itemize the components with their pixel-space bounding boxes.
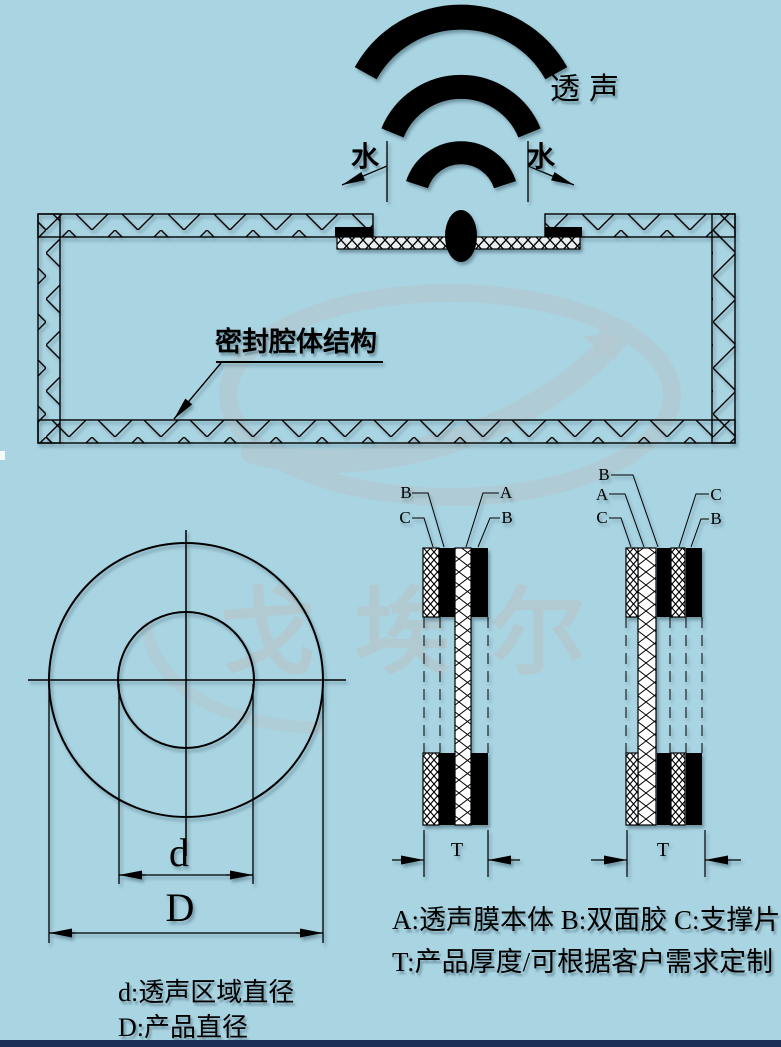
technical-drawing: d D [0, 0, 781, 1047]
stack-view-2: B A C C B T [591, 465, 741, 877]
legend-product-diameter: D:产品直径 [118, 1014, 248, 1041]
stack2-adhesive-bottom-right [686, 753, 702, 825]
stack1-adhesive-top-right [471, 548, 488, 617]
sound-transmission-label: 透声 [550, 74, 628, 106]
dim-label-D: D [166, 885, 195, 930]
stack2-label-b-right: B [710, 509, 721, 528]
wall-right [712, 214, 735, 443]
cavity-leader-arrow [174, 363, 221, 419]
stack1-label-b-right: B [501, 508, 512, 527]
sealed-cavity-label: 密封腔体结构 [215, 328, 377, 356]
adhesive-block-right [545, 227, 582, 237]
stack2-thickness-label: T [657, 839, 669, 861]
sealed-cavity-section [38, 210, 735, 443]
water-label-right: 水 [527, 143, 555, 172]
adhesive-block-left [335, 227, 373, 237]
dim-label-d: d [169, 830, 189, 875]
stack2-adhesive-top-mid [657, 548, 671, 617]
stack1-adhesive-bottom-left [439, 753, 455, 825]
stack1-label-a-right: A [500, 483, 513, 502]
stack1-label-c-left: C [399, 508, 410, 527]
membrane-center-dome [445, 210, 477, 262]
stack-view-1: B C A B T [392, 483, 520, 877]
stack1-label-b-left: B [400, 483, 411, 502]
wall-left [38, 214, 60, 443]
stack2-label-b-left: B [598, 465, 609, 484]
left-edge-notch [0, 451, 5, 460]
front-view: d D [28, 530, 346, 943]
stack1-adhesive-bottom-right [471, 753, 488, 825]
stack2-adhesive-top-right [686, 548, 702, 617]
wall-top-left [38, 214, 373, 237]
legend-inner-diameter: d:透声区域直径 [118, 979, 294, 1006]
stack2-label-a-left: A [596, 485, 609, 504]
stack2-label-c-right: C [710, 485, 721, 504]
legend-layer-definitions: A:透声膜本体 B:双面胶 C:支撑片 [392, 906, 781, 934]
wall-bottom [38, 420, 735, 443]
diagram-page: 戈埃尔 [0, 0, 781, 1047]
stack2-label-c-left: C [596, 508, 607, 527]
footer-bar [0, 1040, 781, 1047]
stack1-adhesive-top-left [439, 548, 455, 617]
stack1-thickness-label: T [451, 839, 463, 861]
water-label-left: 水 [351, 143, 379, 172]
legend-thickness-definition: T:产品厚度/可根据客户需求定制 [392, 948, 773, 976]
stack2-adhesive-bottom-mid [657, 753, 671, 825]
